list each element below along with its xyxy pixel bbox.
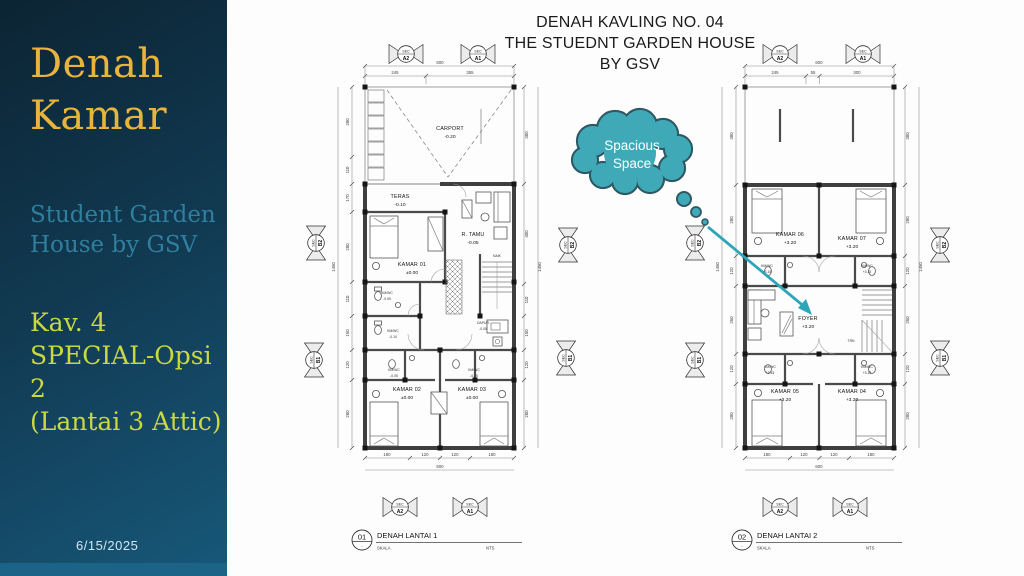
slide-subtitle-line1: Student Garden — [30, 200, 216, 230]
slide-subtitle: Student Garden House by GSV — [30, 200, 216, 260]
plan2-dim-right: 380 280 120 260 120 280 1450 — [903, 85, 923, 450]
svg-text:1450: 1450 — [331, 262, 336, 272]
svg-text:TERAS: TERAS — [391, 194, 410, 200]
plan2-dim-bottom: 180 120 120 180 600 — [743, 452, 896, 470]
svg-text:600: 600 — [436, 60, 444, 65]
callout-text-line1: Spacious — [604, 138, 660, 153]
plan1-dim-top: 600 245 355 — [363, 60, 516, 84]
p2-section-marker-a2-top: SEC A2 — [763, 45, 797, 64]
slide-option-text: Kav. 4 SPECIAL-Opsi 2 (Lantai 3 Attic) — [30, 306, 227, 438]
p2-section-marker-b2-left: SEC B2 — [686, 226, 705, 260]
svg-text:110: 110 — [345, 295, 350, 302]
svg-text:A2: A2 — [777, 56, 784, 62]
svg-text:B2: B2 — [318, 240, 324, 247]
svg-text:300: 300 — [853, 70, 861, 75]
svg-text:260: 260 — [905, 316, 910, 324]
svg-text:+3.15: +3.15 — [863, 270, 872, 274]
svg-text:KM/WC: KM/WC — [381, 291, 393, 295]
svg-text:±0.00: ±0.00 — [466, 395, 478, 401]
section-marker-a1-bottom: SEC A1 — [453, 498, 487, 517]
section-marker-b2-right: SEC B2 — [559, 228, 578, 262]
svg-text:1450: 1450 — [537, 262, 542, 272]
svg-text:380: 380 — [729, 132, 734, 140]
svg-text:280: 280 — [345, 243, 350, 251]
svg-text:SEC: SEC — [690, 356, 694, 364]
svg-text:R. TAMU: R. TAMU — [461, 232, 484, 238]
option-line1: Kav. 4 — [30, 306, 227, 339]
svg-text:01: 01 — [358, 533, 366, 542]
svg-text:B1: B1 — [697, 357, 703, 364]
svg-text:180: 180 — [763, 452, 771, 457]
svg-text:150: 150 — [524, 329, 529, 337]
stairs-lantai2: TRN — [848, 290, 892, 352]
p2-section-marker-a2-bottom: SEC A2 — [763, 498, 797, 517]
svg-text:280: 280 — [905, 412, 910, 420]
svg-text:SEC: SEC — [402, 49, 410, 53]
svg-text:120: 120 — [905, 365, 910, 373]
svg-text:120: 120 — [345, 361, 350, 369]
svg-text:B2: B2 — [570, 242, 576, 249]
floor-plan-2: SEC A2 SEC A1 600 245 55 300 — [668, 24, 968, 564]
slide-subtitle-line2: House by GSV — [30, 230, 216, 260]
plan1-furniture — [370, 192, 510, 446]
svg-text:NTS: NTS — [486, 546, 495, 551]
svg-text:CARPORT: CARPORT — [436, 126, 464, 132]
svg-text:280: 280 — [345, 118, 350, 126]
svg-text:KM/WC: KM/WC — [861, 365, 873, 369]
svg-text:SEC: SEC — [859, 49, 867, 53]
section-marker-a2-top: SEC A2 — [389, 45, 423, 64]
p2-section-marker-a1-bottom: SEC A1 — [833, 498, 867, 517]
svg-text:180: 180 — [488, 452, 496, 457]
svg-text:110: 110 — [524, 296, 529, 303]
svg-text:120: 120 — [830, 452, 838, 457]
svg-text:170: 170 — [345, 194, 350, 202]
svg-text:SKALA: SKALA — [757, 546, 771, 551]
svg-text:-0.05: -0.05 — [467, 240, 478, 246]
floor-plan-1: SEC A2 SEC A1 600 245 355 — [290, 24, 590, 564]
svg-text:A1: A1 — [860, 56, 867, 62]
svg-text:±0.00: ±0.00 — [401, 395, 413, 401]
svg-text:±0.00: ±0.00 — [406, 270, 418, 276]
svg-text:B1: B1 — [568, 355, 574, 362]
svg-text:110: 110 — [345, 166, 350, 173]
plan1-dim-right: 380 400 110 150 120 280 1450 — [522, 85, 542, 450]
svg-text:1450: 1450 — [715, 262, 720, 272]
plan2-open-area — [743, 85, 897, 186]
svg-text:120: 120 — [905, 267, 910, 275]
slide-title-line1: Denah — [30, 38, 167, 90]
svg-text:+3.20: +3.20 — [846, 244, 859, 250]
svg-text:DENAH LANTAI 1: DENAH LANTAI 1 — [377, 531, 437, 540]
plan2-doors — [803, 256, 835, 354]
svg-text:380: 380 — [905, 132, 910, 140]
svg-text:B2: B2 — [942, 242, 948, 249]
svg-text:400: 400 — [524, 230, 529, 238]
svg-text:SEC: SEC — [776, 502, 784, 506]
svg-text:A1: A1 — [847, 509, 854, 515]
svg-text:NAIK: NAIK — [493, 254, 502, 258]
svg-text:02: 02 — [738, 533, 746, 542]
slide: Denah Kamar Student Garden House by GSV … — [0, 0, 1024, 576]
carport-area: CARPORT -0.20 — [363, 85, 517, 185]
plan1-title-block: 01 - DENAH LANTAI 1 SKALA NTS — [352, 530, 522, 551]
svg-text:SEC: SEC — [309, 356, 313, 364]
svg-text:355: 355 — [466, 70, 474, 75]
svg-text:TRN: TRN — [848, 339, 856, 343]
svg-text:B1: B1 — [316, 357, 322, 364]
svg-text:DENAH LANTAI 2: DENAH LANTAI 2 — [757, 531, 817, 540]
svg-text:120: 120 — [524, 361, 529, 369]
section-marker-a2-bottom: SEC A2 — [383, 498, 417, 517]
svg-text:+3.20: +3.20 — [802, 324, 815, 330]
svg-text:150: 150 — [345, 329, 350, 337]
svg-text:120: 120 — [800, 452, 808, 457]
p2-section-marker-b1-right: SEC B1 — [931, 341, 950, 375]
sidebar: Denah Kamar Student Garden House by GSV … — [0, 0, 227, 576]
svg-text:SEC: SEC — [935, 354, 939, 362]
svg-text:SEC: SEC — [466, 502, 474, 506]
svg-text:280: 280 — [729, 412, 734, 420]
plan2-title-block: 02 - DENAH LANTAI 2 SKALA NTS — [732, 530, 902, 551]
svg-text:A1: A1 — [475, 56, 482, 62]
svg-text:KAMAR 01: KAMAR 01 — [398, 262, 426, 268]
svg-text:180: 180 — [867, 452, 875, 457]
svg-text:KAMAR 07: KAMAR 07 — [838, 236, 866, 242]
section-marker-b1-right: SEC B1 — [557, 341, 576, 375]
svg-text:KM/WC: KM/WC — [764, 365, 776, 369]
svg-text:SEC: SEC — [935, 241, 939, 249]
slide-date: 6/15/2025 — [76, 538, 138, 553]
callout-text-line2: Space — [613, 156, 651, 171]
svg-text:KM/WC: KM/WC — [761, 264, 773, 268]
svg-text:B2: B2 — [697, 240, 703, 247]
svg-text:SEC: SEC — [776, 49, 784, 53]
svg-text:280: 280 — [905, 216, 910, 224]
svg-text:260: 260 — [729, 316, 734, 324]
svg-text:120: 120 — [729, 365, 734, 373]
p2-section-marker-a1-top: SEC A1 — [846, 45, 880, 64]
svg-text:KAMAR 05: KAMAR 05 — [771, 389, 799, 395]
svg-text:KAMAR 03: KAMAR 03 — [458, 387, 486, 393]
slide-title: Denah Kamar — [30, 38, 167, 142]
svg-text:SEC: SEC — [474, 49, 482, 53]
svg-text:245: 245 — [771, 70, 779, 75]
svg-text:180: 180 — [383, 452, 391, 457]
svg-text:-0.05: -0.05 — [479, 327, 487, 331]
svg-text:55: 55 — [811, 70, 816, 75]
svg-text:+3.20: +3.20 — [784, 240, 797, 246]
svg-text:A2: A2 — [777, 509, 784, 515]
svg-text:1450: 1450 — [918, 262, 923, 272]
svg-text:120: 120 — [421, 452, 429, 457]
svg-text:SEC: SEC — [396, 502, 404, 506]
svg-text:120: 120 — [729, 267, 734, 275]
svg-text:-0.10: -0.10 — [389, 335, 397, 339]
svg-text:KM/WC: KM/WC — [388, 368, 400, 372]
svg-text:600: 600 — [436, 464, 444, 469]
svg-text:-0.05: -0.05 — [470, 374, 478, 378]
svg-text:-0.05: -0.05 — [390, 374, 398, 378]
option-line3: (Lantai 3 Attic) — [30, 405, 227, 438]
slide-title-line2: Kamar — [30, 90, 167, 142]
svg-text:+3.15: +3.15 — [763, 270, 772, 274]
svg-text:280: 280 — [524, 410, 529, 418]
section-marker-b2-left: SEC B2 — [307, 226, 326, 260]
svg-text:600: 600 — [815, 464, 823, 469]
section-marker-a1-top: SEC A1 — [461, 45, 495, 64]
svg-text:600: 600 — [815, 60, 823, 65]
svg-text:KM/WC: KM/WC — [861, 264, 873, 268]
sidebar-footer-bar — [0, 563, 227, 576]
svg-text:SKALA: SKALA — [377, 546, 391, 551]
carport-storage-cells — [368, 90, 384, 180]
svg-text:245: 245 — [391, 70, 399, 75]
svg-text:KAMAR 04: KAMAR 04 — [838, 389, 866, 395]
p2-section-marker-b1-left: SEC B1 — [686, 343, 705, 377]
svg-text:+3.20: +3.20 — [846, 397, 859, 403]
svg-text:SEC: SEC — [846, 502, 854, 506]
svg-text:A2: A2 — [397, 509, 404, 515]
svg-text:SEC: SEC — [563, 241, 567, 249]
svg-text:A2: A2 — [403, 56, 410, 62]
option-line2: SPECIAL-Opsi 2 — [30, 339, 227, 405]
svg-text:SEC: SEC — [690, 239, 694, 247]
plan2-dim-left: 380 280 120 260 120 280 1450 — [715, 85, 738, 450]
svg-text:280: 280 — [729, 216, 734, 224]
svg-text:+3.20: +3.20 — [779, 397, 792, 403]
svg-text:KAMAR 02: KAMAR 02 — [393, 387, 421, 393]
section-marker-b1-left: SEC B1 — [305, 343, 324, 377]
svg-text:B1: B1 — [942, 355, 948, 362]
svg-text:DAPUR: DAPUR — [477, 321, 489, 325]
svg-text:SEC: SEC — [561, 354, 565, 362]
svg-text:KAMAR 06: KAMAR 06 — [776, 232, 804, 238]
svg-text:280: 280 — [345, 410, 350, 418]
svg-text:A1: A1 — [467, 509, 474, 515]
plan1-dim-left: 280 110 170 280 110 150 120 280 1450 — [331, 85, 354, 450]
svg-text:380: 380 — [524, 131, 529, 139]
svg-text:+3.15: +3.15 — [766, 371, 775, 375]
p2-section-marker-b2-right: SEC B2 — [931, 228, 950, 262]
svg-text:-0.20: -0.20 — [444, 134, 455, 140]
svg-text:KM/WC: KM/WC — [468, 368, 480, 372]
svg-text:-0.10: -0.10 — [394, 202, 405, 208]
plan1-dim-bottom: 180 120 120 180 600 — [363, 452, 516, 470]
svg-text:120: 120 — [451, 452, 459, 457]
svg-text:+3.15: +3.15 — [863, 371, 872, 375]
svg-text:KM/WC: KM/WC — [387, 329, 399, 333]
svg-text:NTS: NTS — [866, 546, 875, 551]
plan2-dim-top: 600 245 55 300 — [743, 60, 896, 84]
svg-text:FOYER: FOYER — [798, 316, 818, 322]
svg-text:-0.05: -0.05 — [383, 297, 391, 301]
svg-text:SEC: SEC — [311, 239, 315, 247]
